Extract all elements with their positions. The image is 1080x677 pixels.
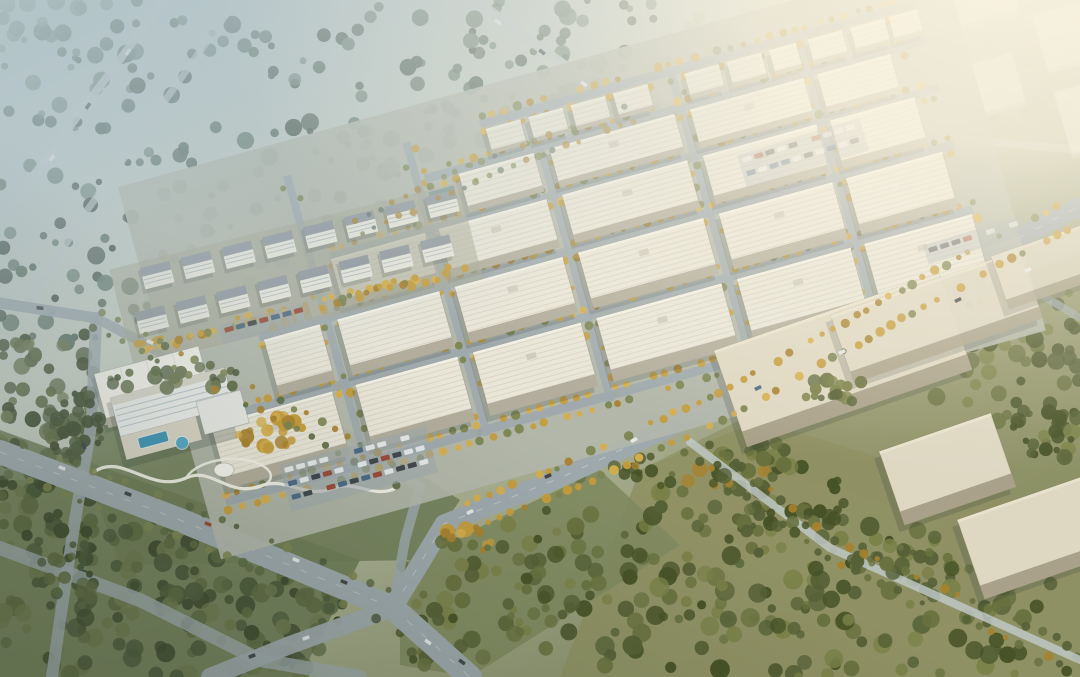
vignette-overlay [0, 0, 1080, 677]
rendering-canvas [0, 0, 1080, 677]
aerial-rendering-industrial-park [0, 0, 1080, 677]
